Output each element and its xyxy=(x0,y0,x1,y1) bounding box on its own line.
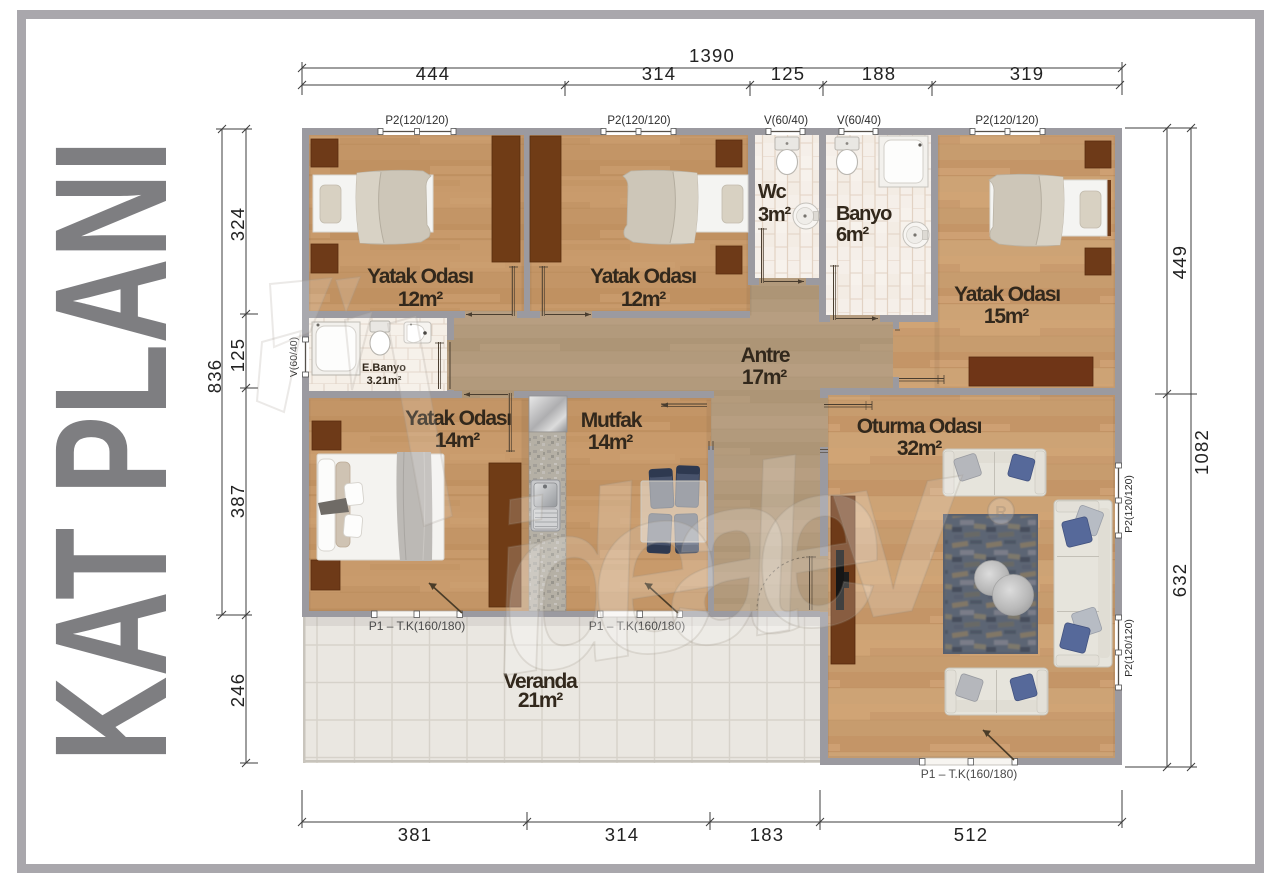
svg-text:183: 183 xyxy=(750,824,784,845)
svg-text:Yatak Odası: Yatak Odası xyxy=(954,283,1060,306)
svg-text:P2(120/120): P2(120/120) xyxy=(975,115,1038,127)
svg-text:P2(120/120): P2(120/120) xyxy=(1123,619,1135,677)
svg-text:Banyo: Banyo xyxy=(836,203,892,225)
svg-text:836: 836 xyxy=(204,359,225,393)
svg-text:P2(120/120): P2(120/120) xyxy=(607,115,670,127)
svg-text:188: 188 xyxy=(862,63,896,84)
svg-text:125: 125 xyxy=(771,63,805,84)
svg-text:632: 632 xyxy=(1169,563,1190,597)
svg-text:32m²: 32m² xyxy=(897,437,942,460)
svg-text:P1 – T.K(160/180): P1 – T.K(160/180) xyxy=(921,767,1018,781)
svg-text:P1 – T.K(160/180): P1 – T.K(160/180) xyxy=(369,619,466,633)
svg-text:R: R xyxy=(995,504,1007,521)
svg-text:Yatak Odası: Yatak Odası xyxy=(590,265,696,288)
svg-text:17m²: 17m² xyxy=(742,366,787,389)
svg-text:15m²: 15m² xyxy=(984,305,1029,328)
svg-text:Yatak Odası: Yatak Odası xyxy=(367,265,473,288)
svg-text:V(60/40): V(60/40) xyxy=(764,115,808,127)
svg-text:444: 444 xyxy=(416,63,450,84)
svg-text:314: 314 xyxy=(642,63,676,84)
svg-text:3m²: 3m² xyxy=(758,204,792,226)
svg-text:V(60/40): V(60/40) xyxy=(837,115,881,127)
svg-text:P2(120/120): P2(120/120) xyxy=(385,115,448,127)
svg-text:14m²: 14m² xyxy=(435,429,480,452)
svg-text:125: 125 xyxy=(227,338,248,372)
svg-text:Wc: Wc xyxy=(758,181,787,203)
svg-text:6m²: 6m² xyxy=(836,224,870,246)
svg-text:449: 449 xyxy=(1169,245,1190,279)
svg-text:381: 381 xyxy=(398,824,432,845)
svg-text:KAT PLANI: KAT PLANI xyxy=(21,140,200,762)
svg-text:319: 319 xyxy=(1010,63,1044,84)
svg-text:246: 246 xyxy=(227,673,248,707)
svg-text:Antre: Antre xyxy=(741,344,790,367)
svg-text:512: 512 xyxy=(954,824,988,845)
svg-text:387: 387 xyxy=(227,484,248,518)
svg-text:12m²: 12m² xyxy=(398,288,443,311)
svg-text:P2(120/120): P2(120/120) xyxy=(1123,475,1135,533)
svg-text:324: 324 xyxy=(227,207,248,241)
svg-text:1082: 1082 xyxy=(1191,429,1212,475)
svg-text:12m²: 12m² xyxy=(621,288,666,311)
svg-text:314: 314 xyxy=(605,824,639,845)
svg-text:1390: 1390 xyxy=(689,45,735,66)
svg-text:Mutfak: Mutfak xyxy=(581,409,643,432)
